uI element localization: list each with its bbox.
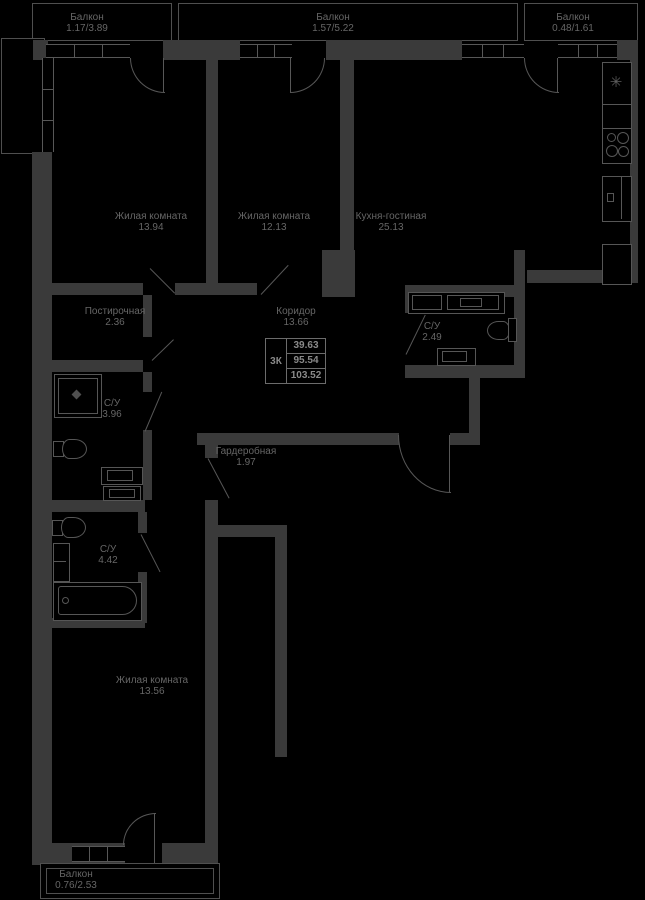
kitchen-counter bbox=[602, 104, 632, 130]
wall-room-divider-1 bbox=[206, 60, 218, 295]
window bbox=[558, 44, 617, 58]
door-leaf bbox=[154, 813, 155, 863]
wall-entry bbox=[322, 433, 399, 445]
bathtub-drain-icon bbox=[62, 597, 69, 604]
wall-building bbox=[275, 537, 287, 757]
stove-burner bbox=[617, 132, 629, 144]
area-value: 95.54 bbox=[287, 354, 325, 369]
door-arc bbox=[123, 813, 156, 845]
door-leaf bbox=[557, 58, 558, 92]
kitchen-cabinet bbox=[602, 244, 632, 285]
window bbox=[240, 44, 292, 58]
window bbox=[462, 44, 524, 58]
door-leaf bbox=[290, 58, 291, 92]
counter-inner bbox=[412, 295, 442, 310]
stove-burner bbox=[618, 146, 629, 157]
window bbox=[42, 58, 54, 152]
toilet-bowl bbox=[61, 517, 86, 538]
room-label-living-2: Жилая комната 12.13 bbox=[219, 211, 329, 233]
toilet-tank bbox=[508, 318, 517, 342]
washing-machine-inner bbox=[109, 489, 135, 498]
wall-wardrobe-top bbox=[197, 433, 322, 445]
room-label-corridor: Коридор 13.66 bbox=[241, 306, 351, 328]
wall-room3-right bbox=[205, 500, 218, 845]
wall-corridor-top bbox=[203, 283, 257, 295]
bathtub-inner bbox=[58, 586, 137, 615]
fridge-divider bbox=[621, 177, 622, 219]
sink-inner bbox=[442, 351, 467, 362]
unit-type: 3К bbox=[266, 339, 287, 383]
wall-laundry-bottom bbox=[32, 360, 143, 372]
entrance-door-leaf bbox=[449, 435, 450, 492]
door-arc bbox=[130, 58, 165, 93]
door-arc bbox=[290, 58, 325, 93]
room-label-kitchen: Кухня-гостиная 25.13 bbox=[336, 211, 446, 233]
wall-segment bbox=[326, 40, 462, 60]
window bbox=[46, 44, 130, 58]
door-leaf bbox=[150, 268, 175, 293]
wall-su249-right bbox=[514, 250, 525, 378]
wall-bath2-bottom2 bbox=[405, 365, 525, 378]
balcony-label-bottom: Балкон 0.76/2.53 bbox=[31, 869, 121, 891]
wall-bath-divider bbox=[32, 500, 145, 512]
fridge-handle bbox=[607, 193, 614, 202]
balcony-label-top-left: Балкон 1.17/3.89 bbox=[42, 12, 132, 34]
sink-inner bbox=[107, 470, 133, 481]
wall-bath1-right bbox=[143, 372, 152, 392]
wall-entry-side bbox=[469, 378, 480, 435]
wall-bath2-right bbox=[138, 512, 147, 533]
wall-building bbox=[218, 525, 287, 537]
balcony-label-top-middle: Балкон 1.57/5.22 bbox=[288, 12, 378, 34]
room-label-bathroom-1: С/У 3.96 bbox=[57, 398, 167, 420]
wall-bath1-right bbox=[143, 430, 152, 500]
door-arc bbox=[524, 58, 559, 93]
area-summary-box: 3К 39.63 95.54 103.52 bbox=[265, 338, 326, 384]
living-area-value: 39.63 bbox=[287, 339, 325, 354]
stove-burner bbox=[606, 145, 618, 157]
window bbox=[72, 846, 125, 862]
room-label-bathroom-3: С/У 4.42 bbox=[53, 544, 163, 566]
stove-burner bbox=[607, 133, 616, 142]
wall-segment bbox=[175, 283, 206, 295]
room-label-wardrobe: Гардеробная 1.97 bbox=[191, 446, 301, 468]
room-label-living-1: Жилая комната 13.94 bbox=[96, 211, 206, 233]
wall-junction bbox=[322, 250, 355, 297]
door-leaf bbox=[152, 339, 174, 361]
door-opening bbox=[125, 843, 162, 863]
balcony-label-top-right: Балкон 0.48/1.61 bbox=[528, 12, 618, 34]
wall-segment bbox=[163, 40, 240, 60]
entrance-door-arc bbox=[398, 435, 451, 493]
door-leaf bbox=[261, 265, 289, 295]
room-label-laundry: Постирочная 2.36 bbox=[60, 306, 170, 328]
door-leaf bbox=[163, 58, 164, 92]
kitchen-sink-icon: ✳ bbox=[602, 75, 630, 90]
wall-laundry-top bbox=[32, 283, 143, 295]
room-label-living-3: Жилая комната 13.56 bbox=[97, 675, 207, 697]
toilet-bowl bbox=[62, 439, 87, 459]
total-area-value: 103.52 bbox=[287, 369, 325, 383]
washing-machine-door bbox=[460, 298, 482, 307]
room-label-bathroom-2: С/У 2.49 bbox=[377, 321, 487, 343]
toilet-bowl bbox=[487, 321, 510, 340]
floor-plan: Балкон 1.17/3.89 Балкон 1.57/5.22 Балкон… bbox=[0, 0, 645, 900]
